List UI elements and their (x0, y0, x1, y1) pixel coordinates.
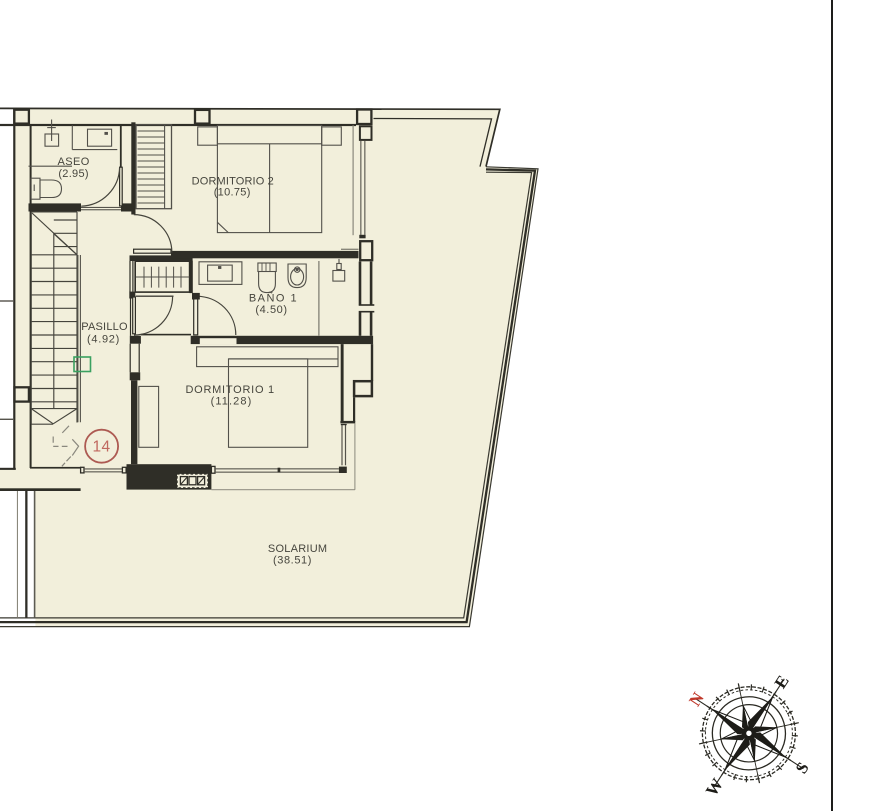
svg-text:(2.95): (2.95) (58, 168, 89, 180)
svg-text:BAÑO 1: BAÑO 1 (249, 291, 298, 304)
svg-text:ASEO: ASEO (58, 156, 90, 168)
svg-text:(4.50): (4.50) (255, 304, 287, 316)
svg-text:(38.51): (38.51) (273, 555, 312, 567)
svg-text:14: 14 (92, 439, 110, 456)
svg-text:DORMITORIO 1: DORMITORIO 1 (185, 384, 274, 396)
svg-text:(4.92): (4.92) (87, 333, 120, 345)
svg-text:(11.28): (11.28) (211, 395, 253, 407)
svg-text:(10.75): (10.75) (214, 187, 251, 199)
svg-text:SOLARIUM: SOLARIUM (268, 543, 327, 555)
svg-text:DORMITORIO 2: DORMITORIO 2 (192, 175, 274, 187)
svg-text:PASILLO: PASILLO (81, 321, 128, 333)
